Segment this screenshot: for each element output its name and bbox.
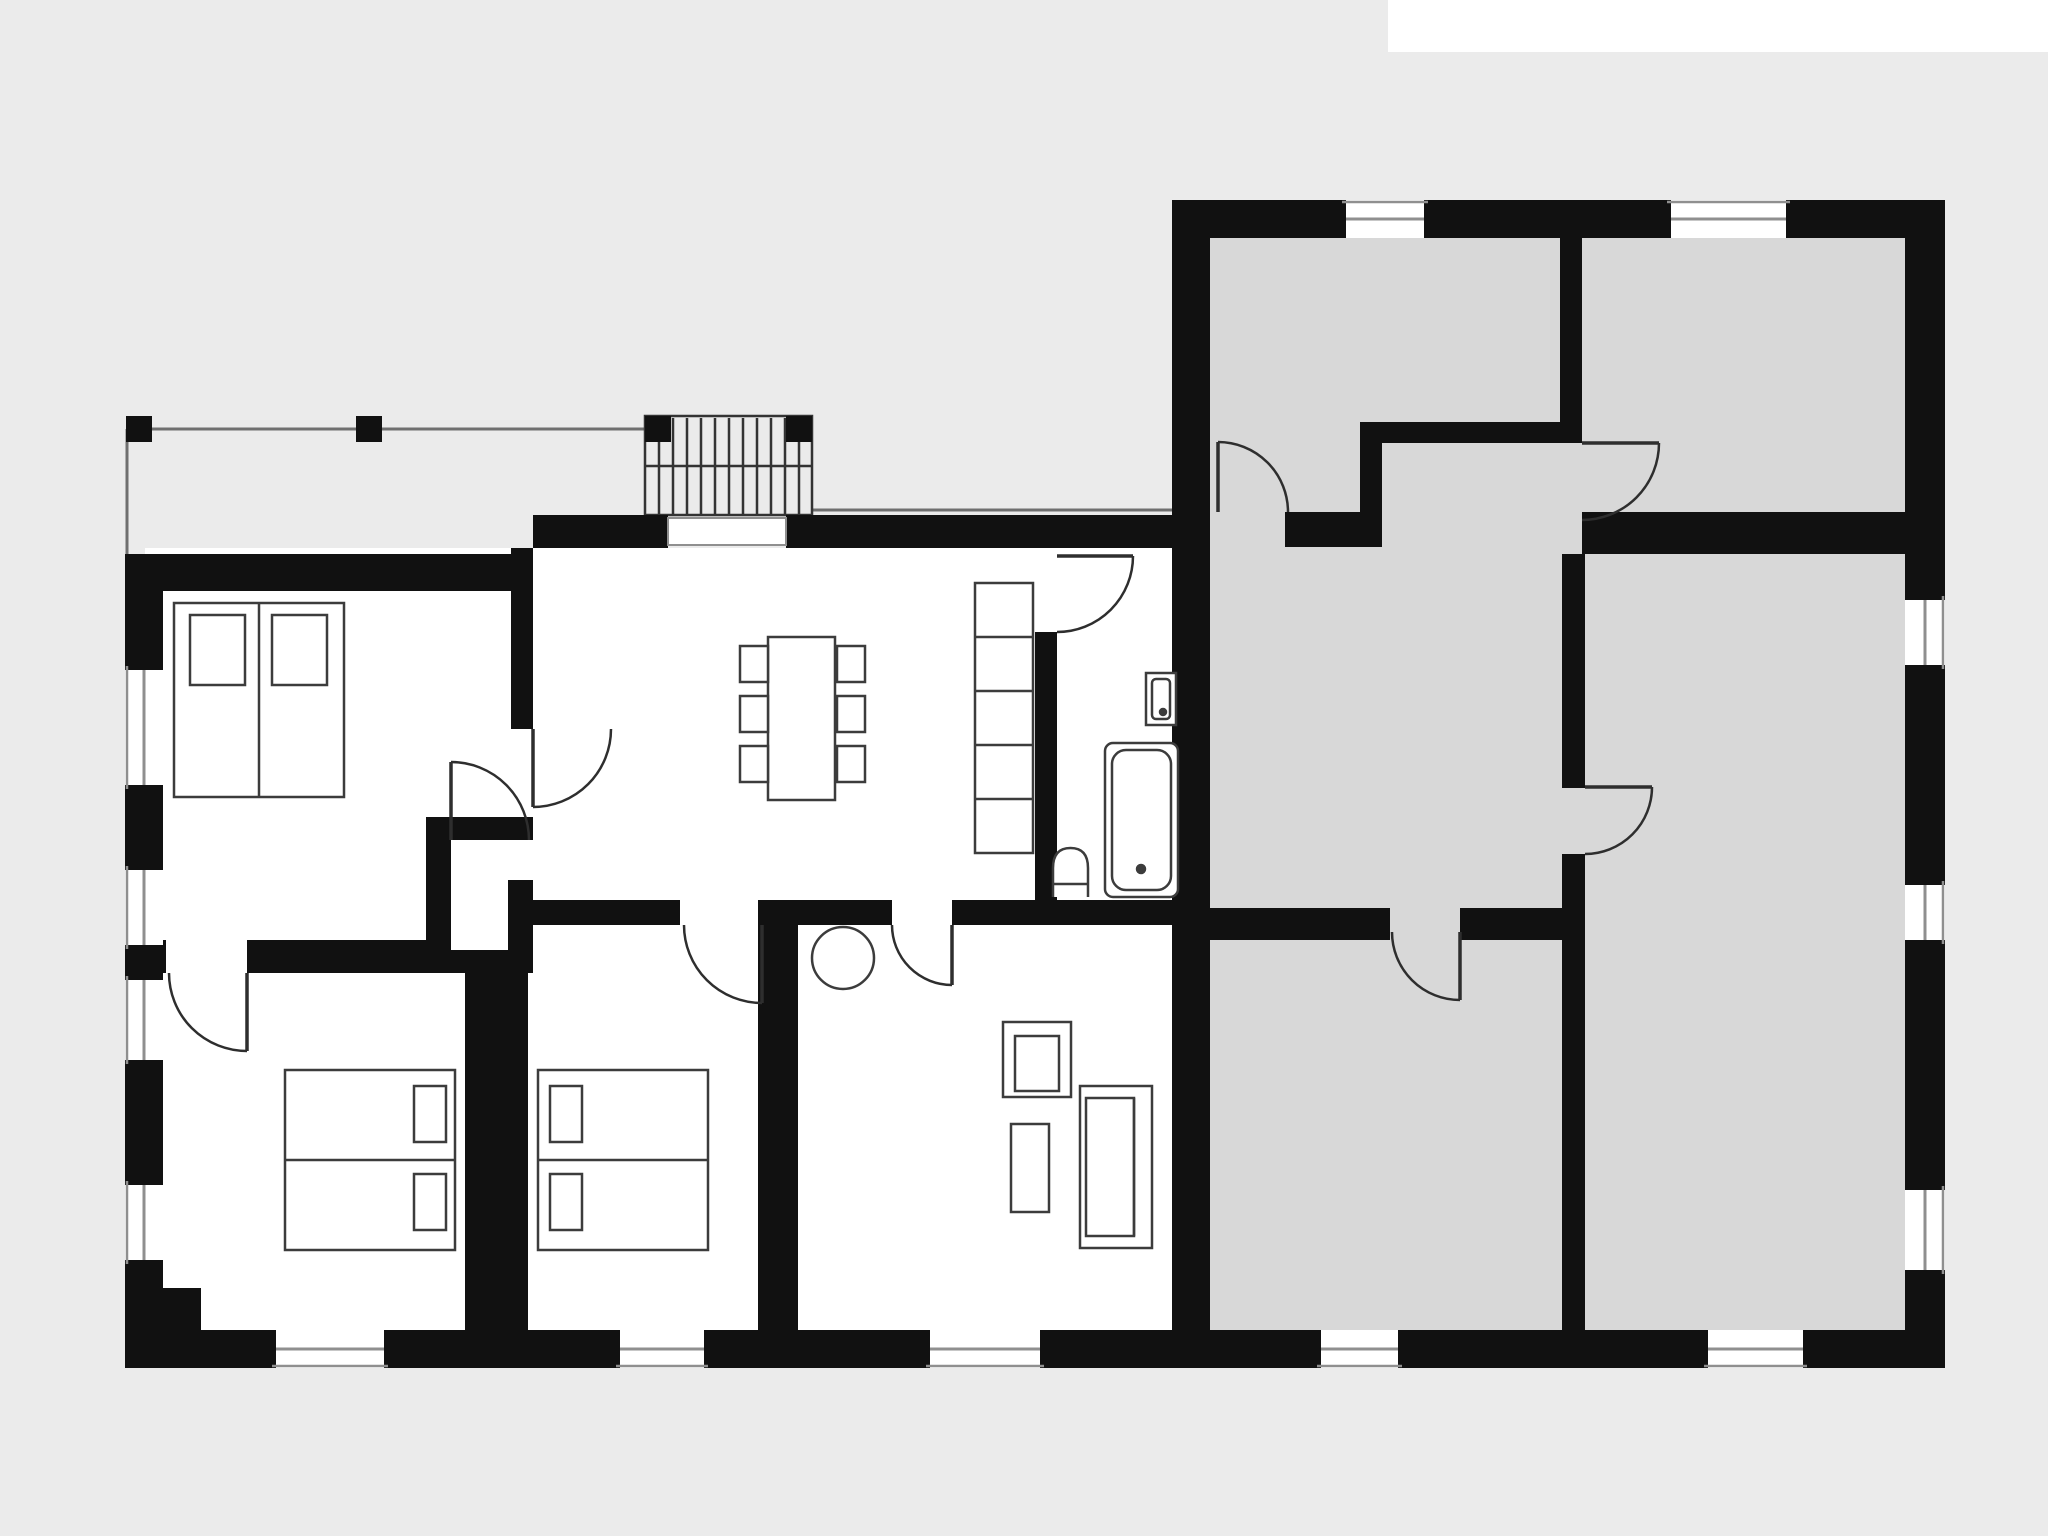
wall-bottom-outer [384, 1330, 620, 1368]
dining-table [740, 646, 768, 682]
twin-beds-bedroom1 [190, 615, 245, 685]
wall-top-right-unit [1424, 200, 1671, 238]
wall-closet-top [426, 817, 533, 840]
wall-right-outer [1905, 1270, 1945, 1368]
double-bed-bedroom3 [550, 1086, 582, 1142]
dining-table [768, 637, 835, 800]
dining-table [837, 646, 865, 682]
wall-hall-bottom [798, 900, 892, 925]
wall-grayroom1-bottom [1382, 422, 1560, 443]
terrace-post [126, 416, 152, 442]
wall-bottom-outer [1040, 1330, 1321, 1368]
stair-post [786, 416, 812, 442]
wall-top-left-unit [533, 515, 668, 548]
wall-bottom-outer [1398, 1330, 1708, 1368]
shelf-unit [975, 583, 1033, 853]
wall-hall-bottom [528, 900, 680, 925]
armchair [1015, 1036, 1059, 1091]
entry-door-panel [668, 518, 786, 545]
floor-right-unit [1210, 238, 1905, 1330]
wall-bath-bottom [952, 900, 1172, 925]
toilet [1053, 848, 1088, 897]
wall-grayhall-bottom [1460, 908, 1562, 940]
top-right-white-strip [1388, 0, 2048, 52]
wall-bottom-outer [704, 1330, 930, 1368]
wall-grayroom2-bottom [1582, 512, 1905, 554]
wall-grayhall-bottom [1210, 908, 1390, 940]
double-bed-bedroom2 [414, 1174, 446, 1230]
wall-grayroom1-bottom [1285, 512, 1382, 547]
wall-grayroom1-grayroom2 [1560, 238, 1582, 443]
wall-bedroom2-top [247, 940, 426, 973]
sofa [1086, 1098, 1134, 1236]
wall-bedroom1-east [511, 548, 533, 729]
wall-grayhall-east [1562, 854, 1585, 1330]
wall-left-outer [125, 591, 163, 670]
bathtub [1137, 865, 1145, 873]
wall-bedroom2-bedroom3 [465, 950, 528, 1330]
wall-bedroom1-top [125, 554, 533, 591]
wall-right-outer [1905, 665, 1945, 885]
double-bed-bedroom3 [550, 1174, 582, 1230]
bathroom-sink [1160, 709, 1166, 715]
dining-table [837, 696, 865, 732]
wall-right-outer [1905, 200, 1945, 600]
wall-top-right-unit [1786, 200, 1905, 238]
dining-table [837, 746, 865, 782]
terrace-post [356, 416, 382, 442]
double-bed-bedroom2 [414, 1086, 446, 1142]
coffee-table [1011, 1124, 1049, 1212]
dining-table [740, 696, 768, 732]
wall-left-outer [125, 785, 163, 870]
floor-plan [0, 0, 2048, 1536]
wall-top-left-unit [786, 515, 1210, 548]
round-side-table [812, 927, 874, 989]
floor-plan-svg [0, 0, 2048, 1536]
stair-post [645, 416, 671, 442]
wall-right-outer [1905, 940, 1945, 1190]
twin-beds-bedroom1 [272, 615, 327, 685]
wall-top-right-unit [1172, 200, 1346, 238]
wall-bedroom3-living [758, 900, 798, 1330]
wall-grayhall-east [1562, 554, 1585, 788]
wall-bottom-outer [125, 1330, 276, 1368]
wall-left-outer [125, 1060, 163, 1185]
dining-table [740, 746, 768, 782]
